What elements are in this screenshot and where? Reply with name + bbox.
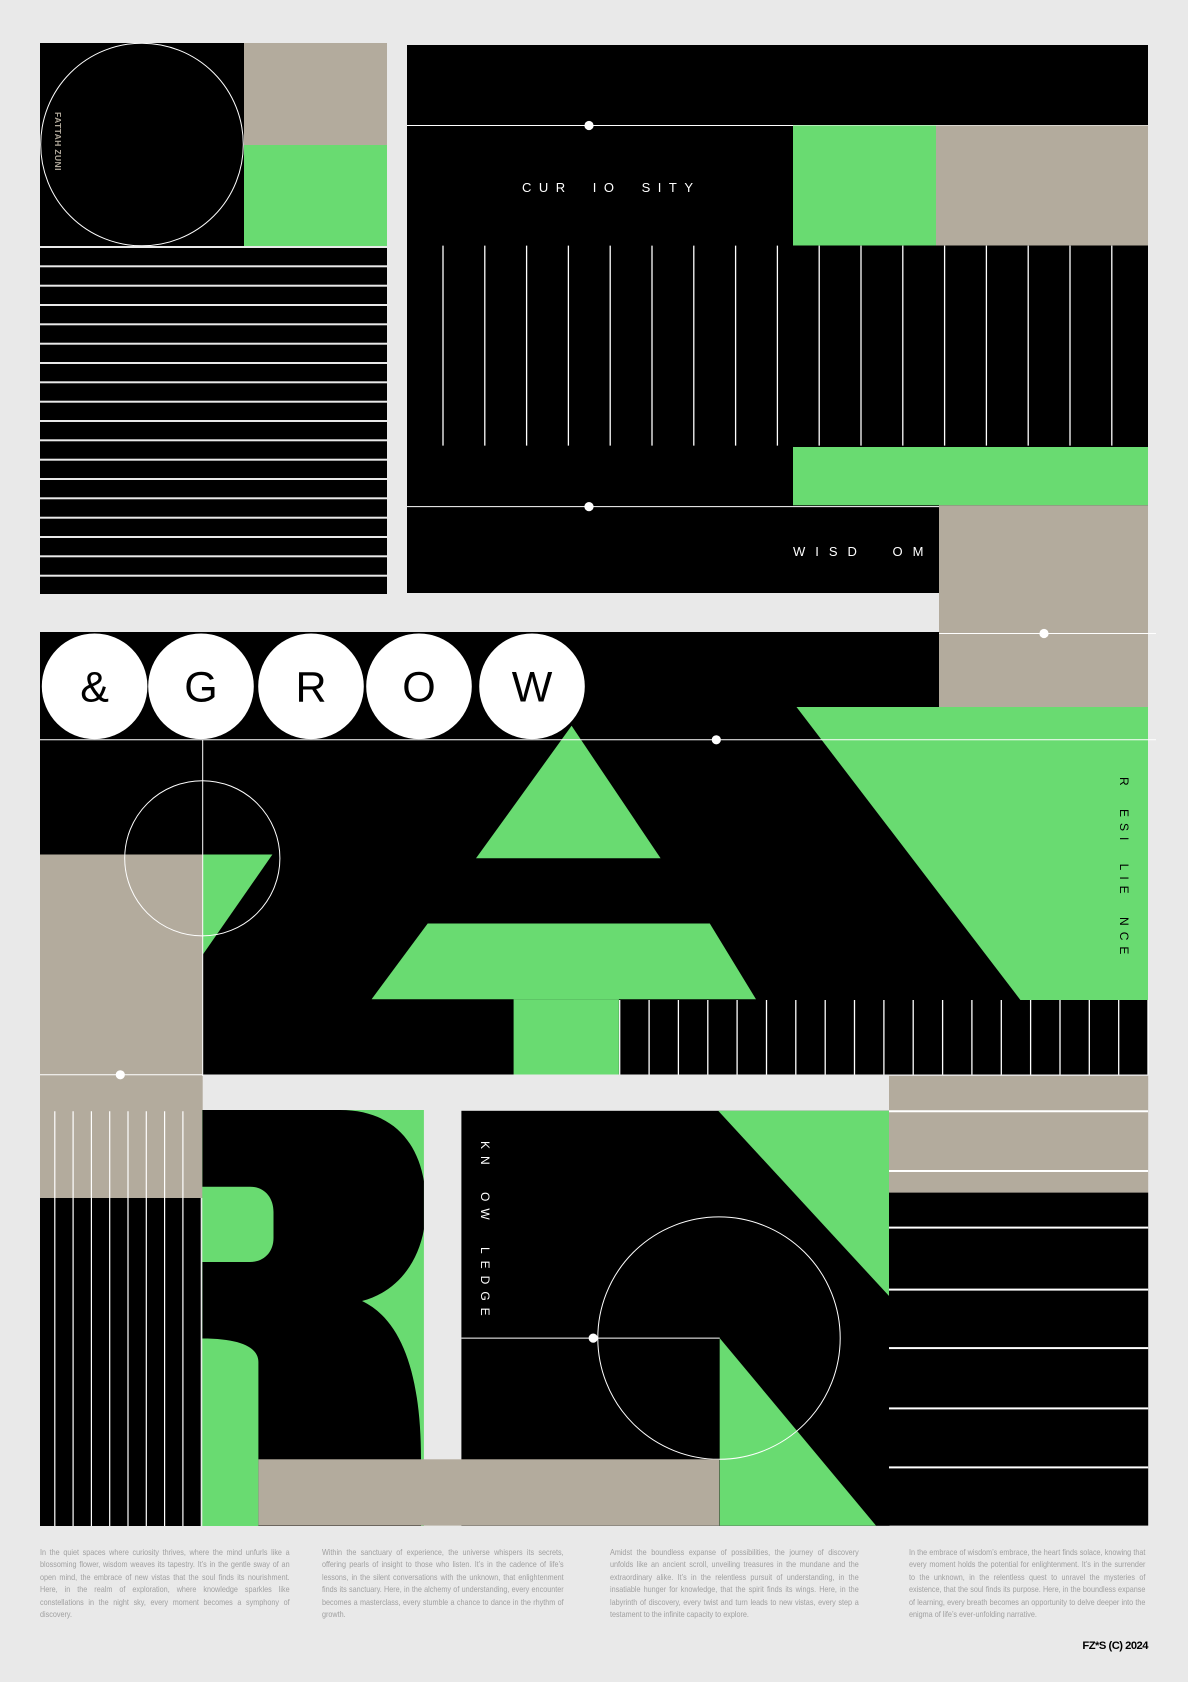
svg-text:O: O [402,664,435,712]
svg-text:R: R [295,664,326,712]
svg-text:G: G [184,664,217,712]
svg-text:W: W [512,664,553,712]
svg-text:CUR IO SITY: CUR IO SITY [522,180,701,195]
svg-text:WISD OM: WISD OM [793,544,934,559]
svg-text:KN OW LEDGE: KN OW LEDGE [478,1141,492,1323]
svg-text:FATTAH ZUNI: FATTAH ZUNI [53,112,63,171]
svg-text:R ESI LIE NCE: R ESI LIE NCE [1117,777,1131,960]
svg-text:&: & [80,664,109,712]
